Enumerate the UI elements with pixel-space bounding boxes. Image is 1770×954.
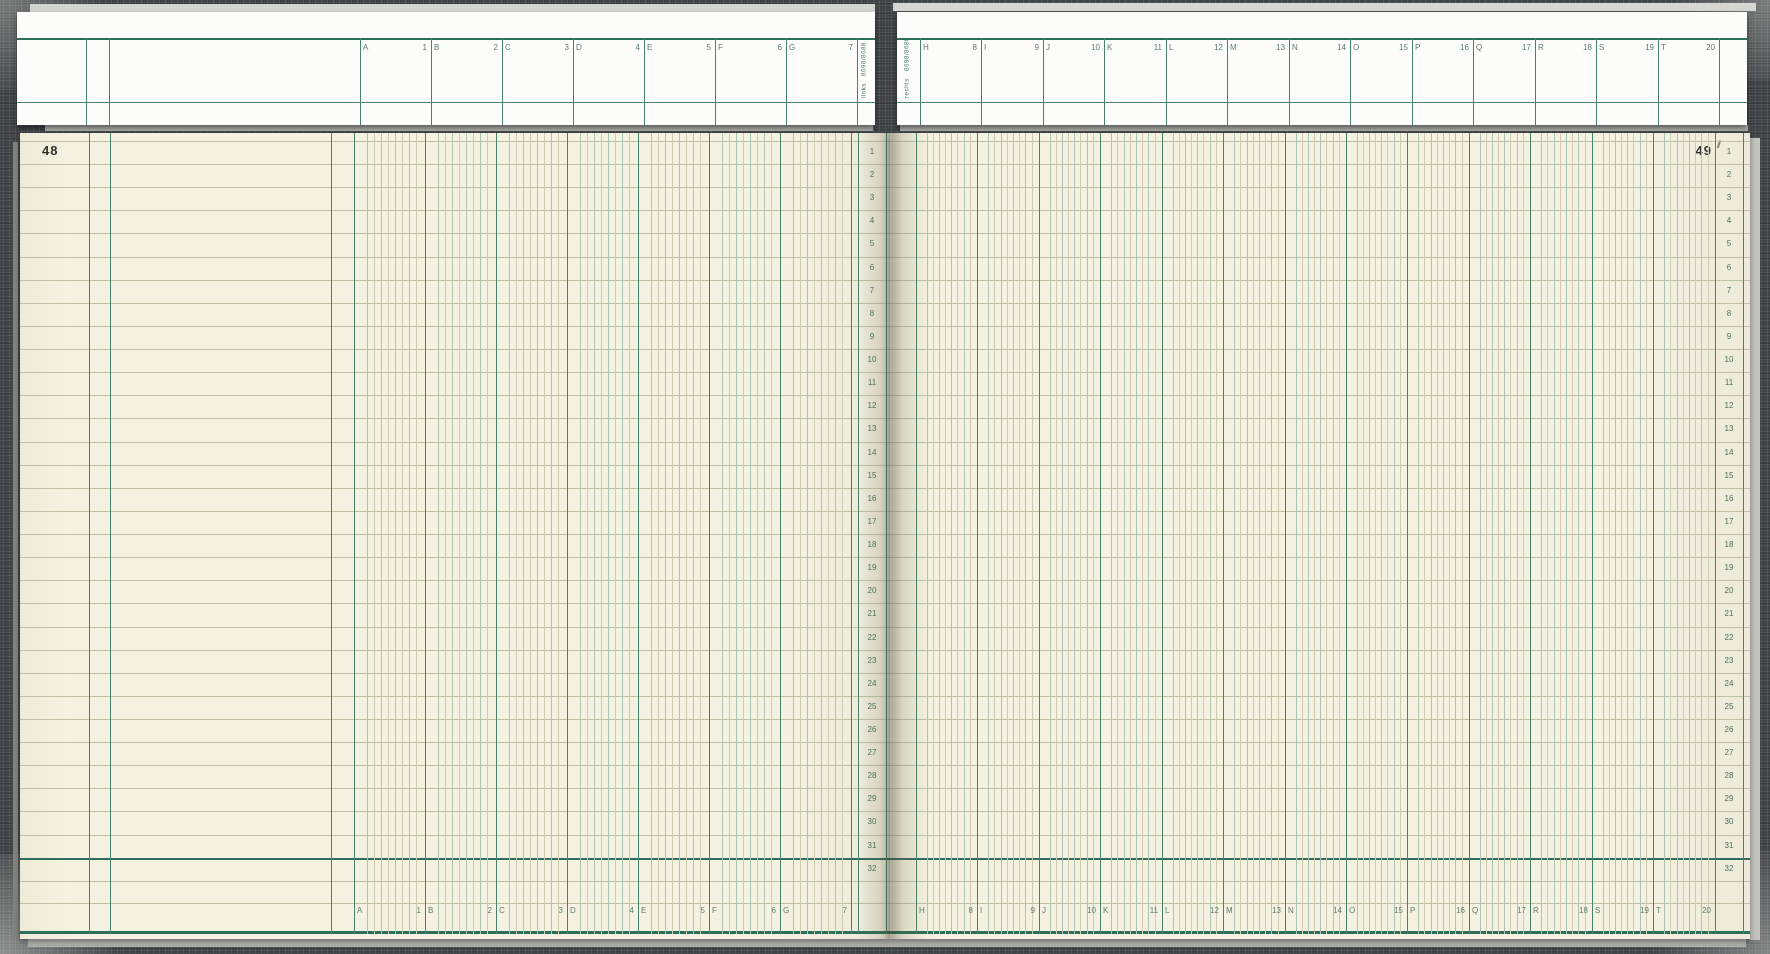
digit-sub-rule (793, 133, 794, 934)
digit-sub-rule (381, 133, 382, 934)
row-line (20, 280, 890, 281)
digit-sub-rule (1418, 133, 1419, 934)
digit-sub-rule (1517, 133, 1518, 934)
row-line (20, 210, 890, 211)
digit-sub-rule (1424, 133, 1425, 934)
footer-column-number: 5 (687, 906, 705, 916)
row-number: 15 (859, 469, 885, 483)
header-column-number: 19 (1635, 43, 1654, 53)
row-number: 30 (1716, 815, 1742, 829)
digit-sub-rule (1007, 133, 1008, 934)
digit-sub-rule (1191, 133, 1192, 934)
row-number: 11 (1716, 376, 1742, 390)
page-stack-edge-under-flap-right (900, 125, 1748, 131)
row-number: 17 (859, 515, 885, 529)
flap-column-rule (1412, 38, 1413, 125)
row-line (20, 488, 890, 489)
footer-column-letter: P (1410, 906, 1415, 916)
digit-sub-rule (988, 133, 989, 934)
digit-sub-rule (1001, 133, 1002, 934)
digit-sub-rule (1111, 133, 1112, 934)
footer-column-letter: E (641, 906, 646, 916)
column-rule (709, 133, 710, 934)
row-number: 28 (859, 769, 885, 783)
digit-sub-rule (1173, 133, 1174, 934)
digit-sub-rule (1615, 133, 1616, 934)
digit-sub-rule (1326, 133, 1327, 934)
footer-column-number: 18 (1570, 906, 1588, 916)
header-column-number: 8 (958, 43, 977, 53)
digit-sub-rule (1627, 133, 1628, 934)
digit-sub-rule (1155, 133, 1156, 934)
row-number: 31 (1716, 839, 1742, 853)
digit-sub-rule (750, 133, 751, 934)
row-number: 19 (859, 561, 885, 575)
header-column-letter: E (647, 43, 652, 53)
row-line (20, 534, 890, 535)
row-number: 10 (1716, 353, 1742, 367)
column-rule (1407, 133, 1408, 934)
digit-sub-rule (1578, 133, 1579, 934)
row-number: 1 (859, 145, 885, 159)
digit-sub-rule (807, 133, 808, 934)
row-line (20, 233, 890, 234)
digit-sub-rule (1572, 133, 1573, 934)
row-number: 24 (859, 677, 885, 691)
header-column-letter: R (1538, 43, 1544, 53)
digit-sub-rule (1708, 133, 1709, 934)
digit-sub-rule (658, 133, 659, 934)
row-number: 21 (1716, 607, 1742, 621)
row-number: 27 (1716, 746, 1742, 760)
digit-sub-rule (594, 133, 595, 934)
row-number: 19 (1716, 561, 1742, 575)
margin-rule (331, 133, 332, 934)
digit-sub-rule (1480, 133, 1481, 934)
footer-column-number: 7 (829, 906, 847, 916)
digit-sub-rule (1683, 133, 1684, 934)
page-number-right: 49 (1632, 143, 1712, 158)
digit-sub-rule (1136, 133, 1137, 934)
digit-sub-rule (1013, 133, 1014, 934)
column-rule (1469, 133, 1470, 934)
footer-column-letter: G (783, 906, 789, 916)
page-number-left: 48 (42, 143, 58, 158)
digit-sub-rule (1640, 133, 1641, 934)
header-column-letter: M (1230, 43, 1237, 53)
header-column-letter: Q (1476, 43, 1482, 53)
digit-sub-rule (1357, 133, 1358, 934)
digit-sub-rule (1566, 133, 1567, 934)
row-number: 4 (1716, 214, 1742, 228)
footer-column-letter: K (1103, 906, 1108, 916)
digit-sub-rule (516, 133, 517, 934)
digit-sub-rule (957, 133, 958, 934)
digit-sub-rule (1560, 133, 1561, 934)
footer-column-letter: M (1226, 906, 1233, 916)
digit-sub-rule (1431, 133, 1432, 934)
digit-sub-rule (530, 133, 531, 934)
digit-sub-rule (629, 133, 630, 934)
row-number: 3 (859, 191, 885, 205)
header-column-letter: C (505, 43, 511, 53)
digit-sub-rule (1308, 133, 1309, 934)
column-rule (354, 133, 355, 934)
digit-sub-rule (537, 133, 538, 934)
digit-sub-rule (1670, 133, 1671, 934)
digit-sub-rule (722, 133, 723, 934)
page-stack-edge-left (13, 142, 18, 936)
ledger-page-left: 48 A1B2C3D4E5F6G712345678910111213141516… (20, 133, 890, 939)
digit-sub-rule (1400, 133, 1401, 934)
digit-sub-rule (1216, 133, 1217, 934)
digit-sub-rule (1203, 133, 1204, 934)
digit-sub-rule (1056, 133, 1057, 934)
column-rule (496, 133, 497, 934)
flap-top-rule (897, 38, 1747, 40)
row-line (20, 881, 890, 882)
row-line (20, 742, 890, 743)
column-rule (977, 133, 978, 934)
column-rule (1530, 133, 1531, 934)
row-number: 29 (1716, 792, 1742, 806)
header-column-letter: G (789, 43, 795, 53)
header-column-number: 1 (408, 43, 427, 53)
digit-sub-rule (1585, 133, 1586, 934)
row-number: 5 (1716, 237, 1742, 251)
row-number: 1 (1716, 145, 1742, 159)
row-number: 11 (859, 376, 885, 390)
header-column-number: 2 (479, 43, 498, 53)
row-line (20, 349, 890, 350)
digit-sub-rule (509, 133, 510, 934)
digit-sub-rule (395, 133, 396, 934)
footer-column-number: 19 (1631, 906, 1649, 916)
digit-sub-rule (416, 133, 417, 934)
digit-sub-rule (587, 133, 588, 934)
row-number: 23 (1716, 654, 1742, 668)
digit-sub-rule (1124, 133, 1125, 934)
digit-sub-rule (757, 133, 758, 934)
page-stack-edge-top-right (893, 3, 1756, 11)
digit-sub-rule (1025, 133, 1026, 934)
footer-column-number: 4 (616, 906, 634, 916)
flap-column-rule (573, 38, 574, 125)
row-number: 18 (859, 538, 885, 552)
header-column-letter: L (1169, 43, 1173, 53)
digit-sub-rule (1247, 133, 1248, 934)
row-line (20, 765, 890, 766)
digit-sub-rule (1363, 133, 1364, 934)
header-column-letter: N (1292, 43, 1298, 53)
digit-sub-rule (388, 133, 389, 934)
footer-column-letter: O (1349, 906, 1355, 916)
row-line (20, 141, 890, 142)
footer-column-letter: I (980, 906, 982, 916)
flap-column-rule (360, 38, 361, 125)
digit-sub-rule (452, 133, 453, 934)
row-number: 17 (1716, 515, 1742, 529)
digit-sub-rule (544, 133, 545, 934)
header-flap-left: links 8698/8688 A1B2C3D4E5F6G7 (17, 12, 875, 125)
digit-sub-rule (1621, 133, 1622, 934)
footer-column-number: 16 (1447, 906, 1465, 916)
digit-sub-rule (1339, 133, 1340, 934)
digit-sub-rule (1179, 133, 1180, 934)
row-number: 6 (1716, 261, 1742, 275)
margin-rule (110, 133, 111, 934)
digit-sub-rule (551, 133, 552, 934)
digit-sub-rule (800, 133, 801, 934)
row-number: 10 (859, 353, 885, 367)
flap-column-rule (1166, 38, 1167, 125)
column-rule (1346, 133, 1347, 934)
digit-sub-rule (601, 133, 602, 934)
bottom-border-line (20, 931, 890, 934)
digit-sub-rule (1142, 133, 1143, 934)
digit-sub-rule (1504, 133, 1505, 934)
flap-column-rule (1535, 38, 1536, 125)
digit-sub-rule (402, 133, 403, 934)
flap-column-rule (786, 38, 787, 125)
row-line (20, 603, 890, 604)
digit-sub-rule (1259, 133, 1260, 934)
digit-sub-rule (1394, 133, 1395, 934)
digit-sub-rule (473, 133, 474, 934)
digit-sub-rule (1646, 133, 1647, 934)
header-column-number: 11 (1143, 43, 1162, 53)
row-number: 2 (1716, 168, 1742, 182)
row-line (20, 673, 890, 674)
digit-sub-rule (1492, 133, 1493, 934)
flap-column-rule (1350, 38, 1351, 125)
digit-sub-rule (1387, 133, 1388, 934)
row-line (20, 835, 890, 836)
row-line (20, 719, 890, 720)
column-rule (851, 133, 852, 934)
digit-sub-rule (1701, 133, 1702, 934)
footer-column-number: 20 (1693, 906, 1711, 916)
digit-sub-rule (1080, 133, 1081, 934)
digit-sub-rule (1253, 133, 1254, 934)
footer-column-number: 2 (474, 906, 492, 916)
digit-sub-rule (835, 133, 836, 934)
digit-sub-rule (1068, 133, 1069, 934)
digit-sub-rule (1265, 133, 1266, 934)
header-column-number: 20 (1696, 43, 1715, 53)
header-column-number: 10 (1081, 43, 1100, 53)
header-column-letter: S (1599, 43, 1604, 53)
footer-column-letter: Q (1472, 906, 1478, 916)
flap-column-rule (1227, 38, 1228, 125)
row-line (20, 580, 890, 581)
digit-sub-rule (445, 133, 446, 934)
digit-sub-rule (939, 133, 940, 934)
header-column-number: 3 (550, 43, 569, 53)
digit-sub-rule (1609, 133, 1610, 934)
column-rule (1100, 133, 1101, 934)
column-rule (1223, 133, 1224, 934)
header-column-number: 18 (1573, 43, 1592, 53)
digit-sub-rule (487, 133, 488, 934)
header-column-number: 7 (834, 43, 853, 53)
digit-sub-rule (1455, 133, 1456, 934)
row-number: 18 (1716, 538, 1742, 552)
digit-sub-rule (1210, 133, 1211, 934)
footer-column-letter: B (428, 906, 433, 916)
row-number: 25 (1716, 700, 1742, 714)
footer-line (20, 903, 890, 904)
row-line (20, 811, 890, 812)
digit-sub-rule (459, 133, 460, 934)
row-number: 2 (859, 168, 885, 182)
header-column-letter: O (1353, 43, 1359, 53)
flap-mid-rule (17, 102, 875, 103)
digit-sub-rule (1462, 133, 1463, 934)
digit-sub-rule (480, 133, 481, 934)
column-rule (638, 133, 639, 934)
digit-sub-rule (970, 133, 971, 934)
digit-sub-rule (927, 133, 928, 934)
flap-column-rule (1473, 38, 1474, 125)
digit-sub-rule (842, 133, 843, 934)
row-number: 5 (859, 237, 885, 251)
digit-sub-rule (736, 133, 737, 934)
digit-sub-rule (1117, 133, 1118, 934)
footer-column-letter: T (1656, 906, 1661, 916)
flap-column-rule (1658, 38, 1659, 125)
left-flap-article-code: links 8698/8688 (860, 42, 867, 98)
row-number: 20 (1716, 584, 1742, 598)
flap-column-rule (1043, 38, 1044, 125)
row-number: 7 (859, 284, 885, 298)
row-number: 8 (859, 307, 885, 321)
header-column-letter: T (1661, 43, 1666, 53)
digit-sub-rule (1087, 133, 1088, 934)
header-flap-right: rechts 8698/8688 H8I9J10K11L12M13N14O15P… (897, 12, 1747, 125)
row-number: 14 (1716, 446, 1742, 460)
row-number: 23 (859, 654, 885, 668)
row-number: 13 (859, 422, 885, 436)
digit-sub-rule (1032, 133, 1033, 934)
column-rule (1592, 133, 1593, 934)
header-column-letter: F (718, 43, 723, 53)
digit-sub-rule (622, 133, 623, 934)
column-rule (780, 133, 781, 934)
footer-column-letter: N (1288, 906, 1294, 916)
row-number: 16 (1716, 492, 1742, 506)
row-line (20, 465, 890, 466)
footer-column-number: 12 (1201, 906, 1219, 916)
flap-column-rule (1719, 38, 1720, 125)
row-line (20, 627, 890, 628)
header-column-letter: K (1107, 43, 1112, 53)
column-rule (916, 133, 917, 934)
digit-sub-rule (1278, 133, 1279, 934)
row-number: 12 (859, 399, 885, 413)
row-number: 14 (859, 446, 885, 460)
row-line (20, 164, 890, 165)
digit-sub-rule (945, 133, 946, 934)
row-number: 26 (1716, 723, 1742, 737)
flap-margin-rule (86, 38, 87, 125)
digit-sub-rule (1633, 133, 1634, 934)
row-line (20, 557, 890, 558)
page-stack-edge-under-flap-left (45, 125, 873, 131)
digit-sub-rule (1240, 133, 1241, 934)
digit-sub-rule (1296, 133, 1297, 934)
row-number: 32 (1716, 862, 1742, 876)
header-column-letter: J (1046, 43, 1050, 53)
header-column-number: 15 (1389, 43, 1408, 53)
header-column-number: 5 (692, 43, 711, 53)
row-number: 7 (1716, 284, 1742, 298)
digit-sub-rule (672, 133, 673, 934)
digit-sub-rule (374, 133, 375, 934)
flap-column-rule (920, 38, 921, 125)
footer-column-number: 8 (955, 906, 973, 916)
margin-rule (89, 133, 90, 934)
digit-sub-rule (686, 133, 687, 934)
digit-sub-rule (821, 133, 822, 934)
digit-sub-rule (994, 133, 995, 934)
footer-column-number: 14 (1324, 906, 1342, 916)
header-column-number: 6 (763, 43, 782, 53)
page-stack-edge-right (1750, 138, 1760, 940)
flap-column-rule (431, 38, 432, 125)
header-column-letter: P (1415, 43, 1420, 53)
digit-sub-rule (1677, 133, 1678, 934)
footer-column-letter: R (1533, 906, 1539, 916)
footer-column-number: 9 (1017, 906, 1035, 916)
digit-sub-rule (665, 133, 666, 934)
footer-column-number: 17 (1508, 906, 1526, 916)
digit-sub-rule (743, 133, 744, 934)
digit-sub-rule (1333, 133, 1334, 934)
header-column-letter: H (923, 43, 929, 53)
digit-sub-rule (1603, 133, 1604, 934)
header-column-number: 9 (1020, 43, 1039, 53)
digit-sub-rule (615, 133, 616, 934)
digit-sub-rule (1375, 133, 1376, 934)
row-number: 27 (859, 746, 885, 760)
digit-sub-rule (828, 133, 829, 934)
digit-sub-rule (523, 133, 524, 934)
row-number: 12 (1716, 399, 1742, 413)
row-number: 29 (859, 792, 885, 806)
row-number: 16 (859, 492, 885, 506)
digit-sub-rule (951, 133, 952, 934)
digit-sub-rule (1019, 133, 1020, 934)
row-line (20, 418, 890, 419)
digit-sub-rule (1369, 133, 1370, 934)
column-rule (1285, 133, 1286, 934)
row-number: 9 (1716, 330, 1742, 344)
flap-column-rule (981, 38, 982, 125)
footer-column-number: 11 (1140, 906, 1158, 916)
row-number: 28 (1716, 769, 1742, 783)
header-column-letter: I (984, 43, 986, 53)
row-line (20, 696, 890, 697)
footer-column-letter: S (1595, 906, 1600, 916)
digit-sub-rule (1271, 133, 1272, 934)
row-number: 22 (859, 631, 885, 645)
digit-sub-rule (1689, 133, 1690, 934)
header-column-letter: B (434, 43, 439, 53)
digit-sub-rule (367, 133, 368, 934)
digit-sub-rule (1547, 133, 1548, 934)
digit-sub-rule (1062, 133, 1063, 934)
